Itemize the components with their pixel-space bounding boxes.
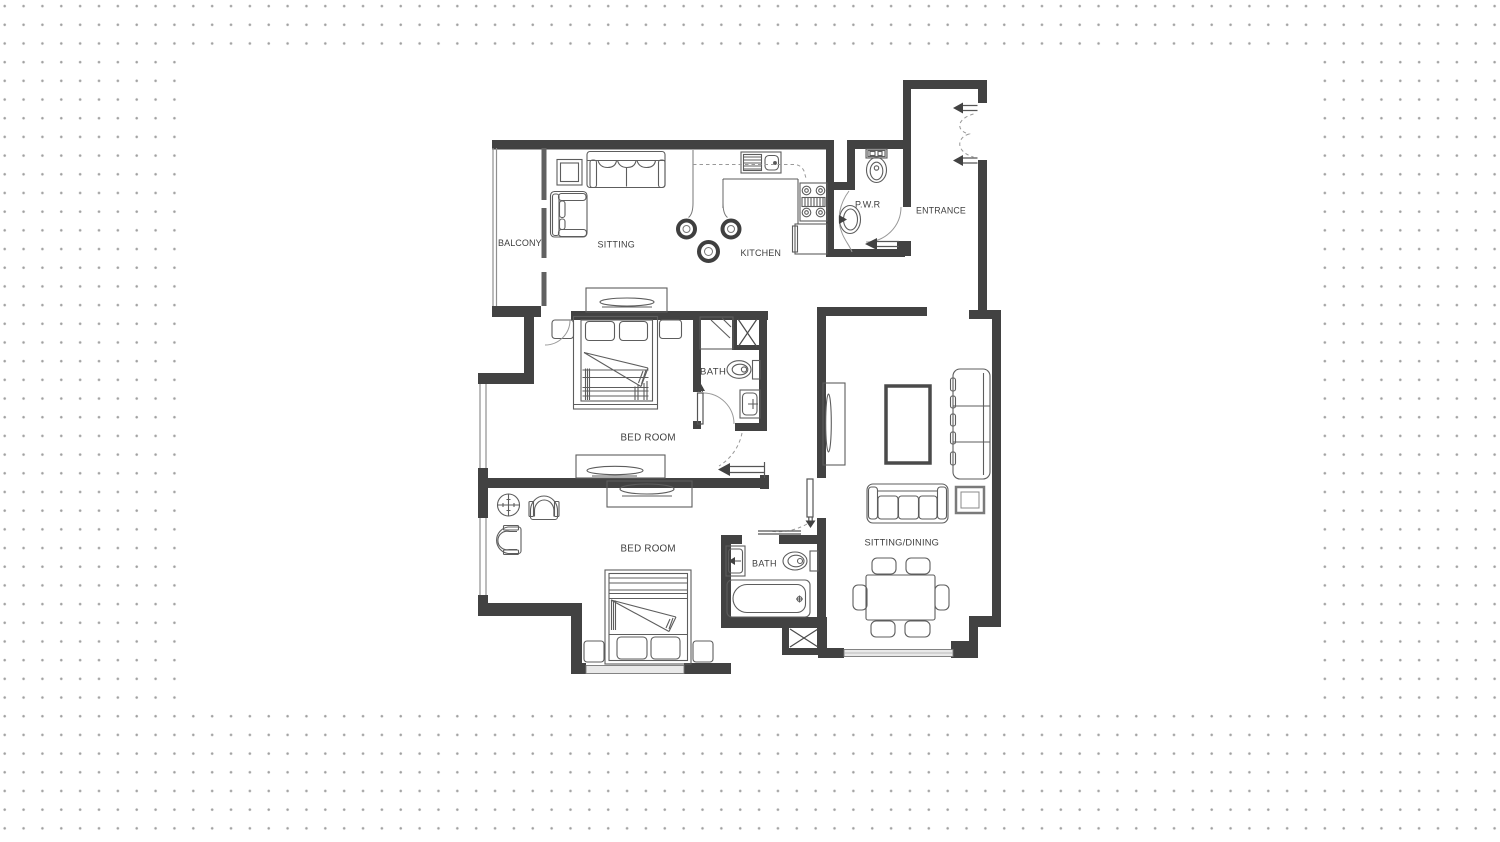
svg-text:SITTING: SITTING — [598, 240, 636, 250]
svg-text:BATH: BATH — [752, 559, 777, 569]
svg-text:SITTING/DINING: SITTING/DINING — [865, 538, 940, 548]
svg-text:KITCHEN: KITCHEN — [741, 248, 782, 258]
svg-text:P.W.R: P.W.R — [855, 200, 881, 210]
svg-text:ENTRANCE: ENTRANCE — [916, 206, 966, 216]
svg-text:BATH: BATH — [700, 367, 726, 378]
svg-text:BALCONY: BALCONY — [498, 238, 542, 248]
svg-text:BED ROOM: BED ROOM — [621, 433, 676, 444]
svg-text:BED ROOM: BED ROOM — [621, 544, 676, 555]
